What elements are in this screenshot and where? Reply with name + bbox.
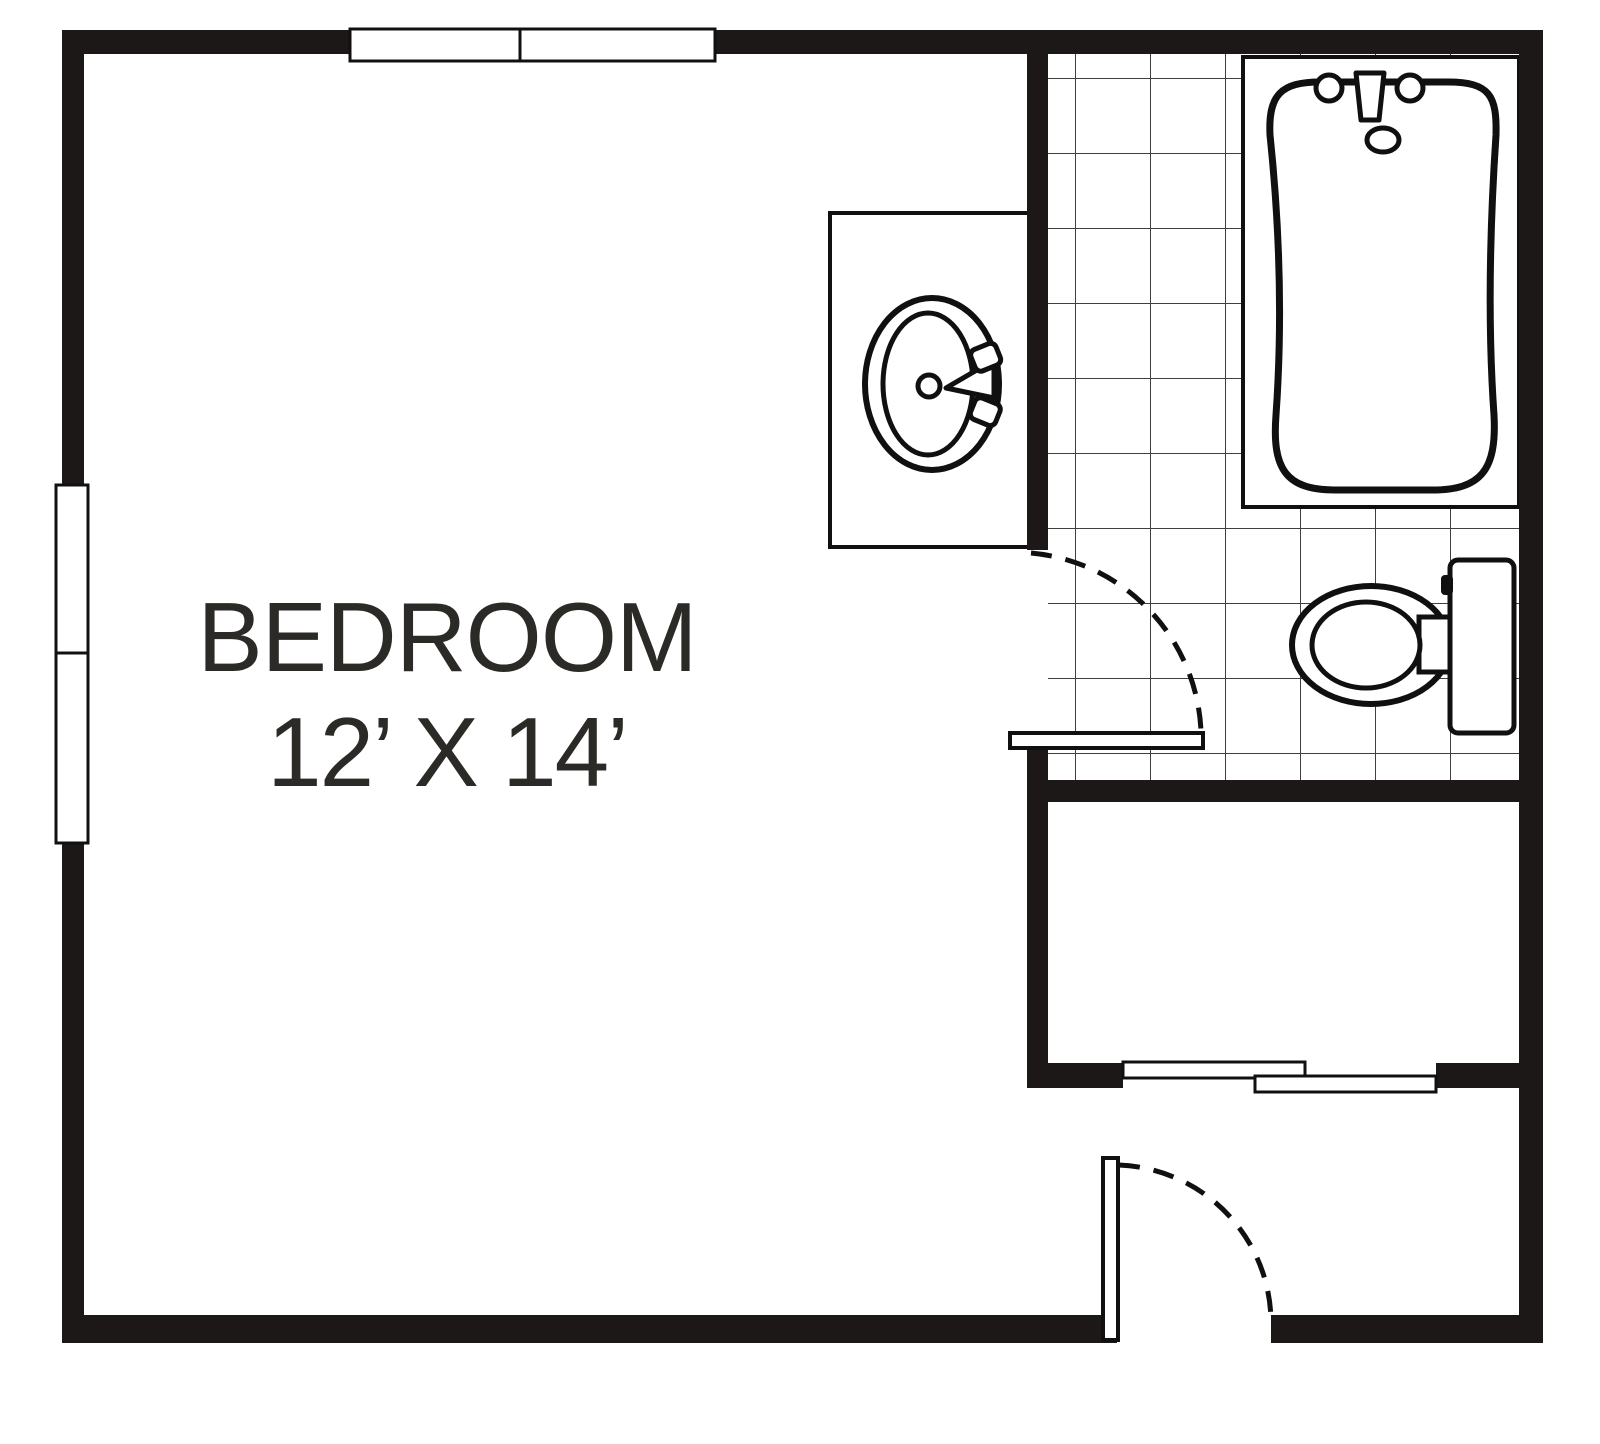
- wall-closet-left: [1027, 800, 1048, 1088]
- entry-door-leaf: [1103, 1158, 1118, 1340]
- toilet-seat-hinge: [1419, 617, 1452, 672]
- wall-bathroom-closet-divider: [1027, 780, 1519, 802]
- room-size-label: 12’ X 14’: [267, 703, 627, 801]
- top-window: [350, 29, 715, 61]
- toilet-tank: [1450, 560, 1514, 733]
- bathtub-drain: [1367, 128, 1399, 152]
- room-name-label: BEDROOM: [197, 588, 696, 686]
- wall-left-upper-segment: [62, 30, 84, 485]
- wall-bottom-left-segment: [62, 1315, 1117, 1343]
- wall-left-lower-segment: [62, 843, 84, 1343]
- toilet-flush-lever: [1441, 575, 1453, 595]
- left-window: [56, 485, 88, 843]
- bathtub-spout: [1356, 73, 1384, 120]
- floor-plan-drawing: [0, 0, 1600, 1444]
- bathroom-door-leaf: [1010, 733, 1203, 748]
- wall-top-right-segment: [715, 30, 1543, 54]
- wall-bathroom-bedroom: [1027, 54, 1048, 550]
- bathtub-faucet-handle-right: [1397, 75, 1423, 101]
- bathtub-faucet-handle-left: [1316, 75, 1342, 101]
- wall-closet-bottom-left: [1027, 1063, 1123, 1088]
- floor-plan: BEDROOM 12’ X 14’: [0, 0, 1600, 1444]
- wall-top-left-segment: [62, 30, 350, 54]
- toilet-seat: [1312, 602, 1420, 688]
- wall-closet-bottom-right: [1436, 1063, 1519, 1088]
- sink-drain: [918, 375, 940, 397]
- wall-right: [1519, 30, 1543, 1343]
- wall-bottom-right-segment: [1271, 1315, 1543, 1343]
- closet-sliding-door-lower: [1255, 1076, 1436, 1092]
- entry-door-swing-arc: [1119, 1165, 1271, 1320]
- wall-bathroom-door-jamb: [1027, 748, 1048, 782]
